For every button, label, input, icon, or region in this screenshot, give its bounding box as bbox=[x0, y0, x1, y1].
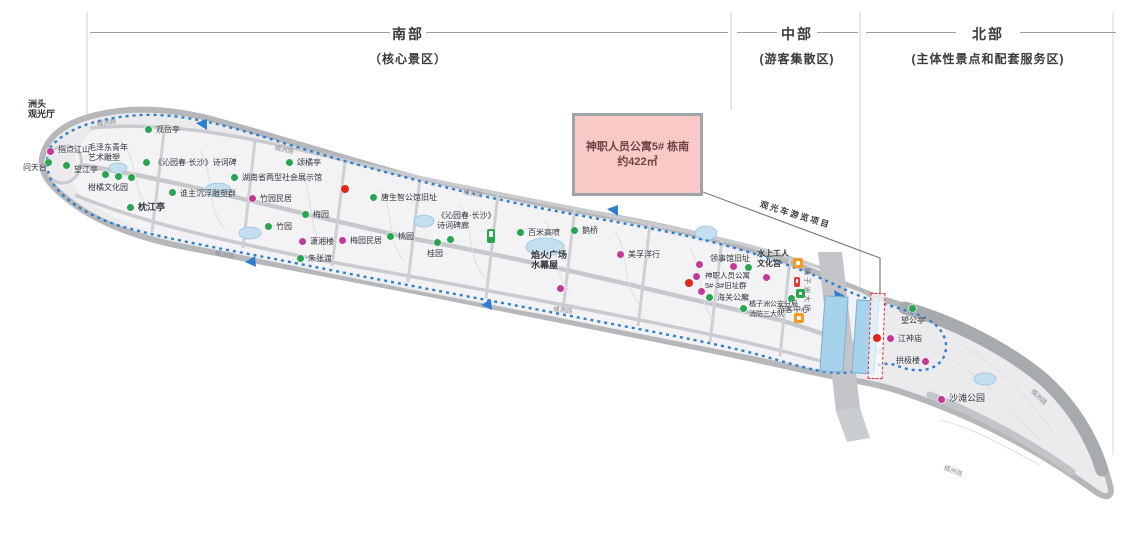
facility-icon-glyph bbox=[799, 292, 803, 296]
tour-map-canvas: 南部 （核心景区） 中部 (游客集散区) 北部 (主体性景点和配套服务区) 神职… bbox=[0, 0, 1136, 553]
facility-icon-orange bbox=[794, 313, 804, 323]
island-map-graphic bbox=[0, 0, 1136, 553]
poi-label: 湖南省两型社会展示馆 bbox=[242, 173, 322, 182]
facility-icon-green bbox=[487, 229, 495, 243]
poi-label: 领事馆旧址 bbox=[710, 254, 750, 263]
text-label-poem-stele-gallery: 《沁园春·长沙》诗词碑廊 bbox=[437, 211, 496, 230]
poi-label: 桃园 bbox=[398, 232, 414, 241]
rule-north-left bbox=[866, 32, 956, 33]
poi-label: 拱极楼 bbox=[896, 356, 920, 365]
text-label-line: 橘子洲公安分局 bbox=[749, 300, 798, 310]
text-label-line: 艺术雕塑 bbox=[88, 153, 128, 163]
bridge-band-south bbox=[836, 408, 870, 442]
facility-icon-glyph bbox=[796, 279, 798, 283]
poi-dot bbox=[685, 279, 693, 287]
poi-dot bbox=[571, 227, 578, 234]
poi-label: 竹园 bbox=[276, 222, 292, 231]
rule-middle-right bbox=[817, 32, 858, 33]
rule-south-left bbox=[90, 32, 390, 33]
poi-dot bbox=[909, 305, 916, 312]
poi-label: 沙滩公园 bbox=[949, 394, 985, 403]
poi-dot bbox=[434, 239, 441, 246]
poi-label: 梅园民居 bbox=[350, 236, 382, 245]
poi-dot bbox=[302, 211, 309, 218]
text-label-line: 观光厅 bbox=[28, 110, 55, 120]
poi-dot bbox=[63, 162, 70, 169]
poi-dot bbox=[339, 237, 346, 244]
poi-dot bbox=[887, 335, 894, 342]
text-label-line: 神职人员公寓 bbox=[705, 271, 750, 281]
poi-label: 望公亭 bbox=[901, 316, 925, 325]
poi-dot bbox=[231, 174, 238, 181]
text-label-line: 水上工人 bbox=[757, 249, 789, 259]
facility-icon-glyph bbox=[489, 231, 492, 237]
poi-dot bbox=[698, 288, 705, 295]
poi-dot bbox=[740, 305, 747, 312]
section-title-south: 南部 bbox=[392, 24, 424, 44]
rule-middle-left bbox=[737, 32, 777, 33]
text-label-line: 消防三大队 bbox=[749, 310, 798, 320]
poi-dot bbox=[730, 263, 737, 270]
poi-label: 百米高喷 bbox=[528, 228, 560, 237]
poi-label: 颂橘亭 bbox=[297, 158, 321, 167]
poi-dot bbox=[128, 174, 135, 181]
text-label-clergy-apartments-group: 神职人员公寓5#·3#旧址群 bbox=[705, 271, 750, 290]
poi-label: 潇湘楼 bbox=[310, 237, 334, 246]
text-label-waterside-workers-culture-palace: 水上工人文化宫 bbox=[757, 249, 789, 268]
poi-dot bbox=[693, 273, 700, 280]
poi-dot bbox=[706, 294, 713, 301]
section-title-north: 北部 bbox=[972, 24, 1004, 44]
poi-dot bbox=[517, 229, 524, 236]
poi-dot bbox=[873, 334, 881, 342]
poi-label: 美孚洋行 bbox=[628, 250, 660, 259]
poi-dot bbox=[763, 274, 770, 281]
poi-label: 指点江山 bbox=[58, 145, 90, 154]
rule-north-right bbox=[1020, 32, 1116, 33]
poi-dot bbox=[617, 251, 624, 258]
facility-icon-red bbox=[794, 277, 800, 287]
poi-dot bbox=[696, 261, 703, 268]
poi-dot bbox=[169, 189, 176, 196]
text-label-line: 水幕屋 bbox=[531, 261, 567, 271]
poi-dot bbox=[145, 126, 152, 133]
poi-label: 《沁园春·长沙》诗词碑 bbox=[154, 158, 237, 167]
poi-dot bbox=[387, 233, 394, 240]
text-label-line: 柑橘文化园 bbox=[88, 183, 128, 193]
callout-line1: 神职人员公寓5# 栋南 bbox=[586, 140, 689, 155]
area-callout-box: 神职人员公寓5# 栋南 约422㎡ bbox=[572, 113, 703, 196]
poi-label: 问天台 bbox=[23, 163, 47, 172]
section-subtitle-north: (主体性景点和配套服务区) bbox=[912, 50, 1065, 67]
text-label-mao-youth-sculpture: 毛泽东青年艺术雕塑 bbox=[88, 143, 128, 162]
poi-dot bbox=[557, 285, 564, 292]
poi-dot bbox=[370, 194, 377, 201]
poi-label: 望江亭 bbox=[74, 165, 98, 174]
text-label-police-station: 橘子洲公安分局消防三大队 bbox=[749, 300, 798, 319]
text-label-line: 5#·3#旧址群 bbox=[705, 281, 750, 291]
poi-label: 鹅桥 bbox=[582, 226, 598, 235]
poi-label: 海关公廨 bbox=[717, 293, 749, 302]
section-subtitle-south: （核心景区） bbox=[369, 50, 447, 67]
poi-dot bbox=[447, 236, 454, 243]
text-label-line: 毛泽东青年 bbox=[88, 143, 128, 153]
poi-dot bbox=[286, 159, 293, 166]
poi-dot bbox=[745, 264, 752, 271]
text-label-citrus-culture-garden: 柑橘文化园 bbox=[88, 183, 128, 193]
text-label-line: 《沁园春·长沙》 bbox=[437, 211, 496, 221]
poi-dot bbox=[143, 159, 150, 166]
poi-label: 竹园民居 bbox=[260, 194, 292, 203]
facility-icon-orange bbox=[793, 258, 803, 268]
poi-dot bbox=[265, 223, 272, 230]
poi-label: 谁主沉浮雕塑群 bbox=[180, 189, 236, 198]
poi-dot bbox=[341, 185, 349, 193]
poi-dot bbox=[938, 396, 945, 403]
facility-icon-glyph bbox=[797, 316, 801, 320]
poi-dot bbox=[102, 171, 109, 178]
poi-dot bbox=[127, 204, 134, 211]
poi-dot bbox=[299, 238, 306, 245]
poi-label: 朱张渡 bbox=[308, 254, 332, 263]
text-label-line: 文化宫 bbox=[757, 259, 789, 269]
poi-label: 唐生智公馆旧址 bbox=[381, 193, 437, 202]
poi-dot bbox=[115, 173, 122, 180]
section-title-middle: 中部 bbox=[781, 24, 813, 44]
facility-icon-glyph bbox=[796, 261, 800, 265]
text-label-zhoutou-viewing-hall: 洲头观光厅 bbox=[28, 100, 55, 119]
poi-dot bbox=[249, 195, 256, 202]
facility-icon-green bbox=[796, 289, 805, 298]
poi-dot bbox=[922, 358, 929, 365]
rule-south-right bbox=[426, 32, 728, 33]
text-label-fireworks-square: 焰火广场水幕屋 bbox=[531, 251, 567, 270]
callout-line2: 约422㎡ bbox=[617, 155, 657, 170]
poi-label: 枕江亭 bbox=[138, 203, 165, 212]
section-subtitle-middle: (游客集散区) bbox=[760, 50, 835, 67]
poi-dot bbox=[47, 148, 54, 155]
poi-label: 桂园 bbox=[427, 249, 443, 258]
poi-label: 江神庙 bbox=[898, 334, 922, 343]
poi-dot bbox=[297, 255, 304, 262]
poi-label: 梅园 bbox=[313, 210, 329, 219]
poi-label: 观岳亭 bbox=[156, 125, 180, 134]
